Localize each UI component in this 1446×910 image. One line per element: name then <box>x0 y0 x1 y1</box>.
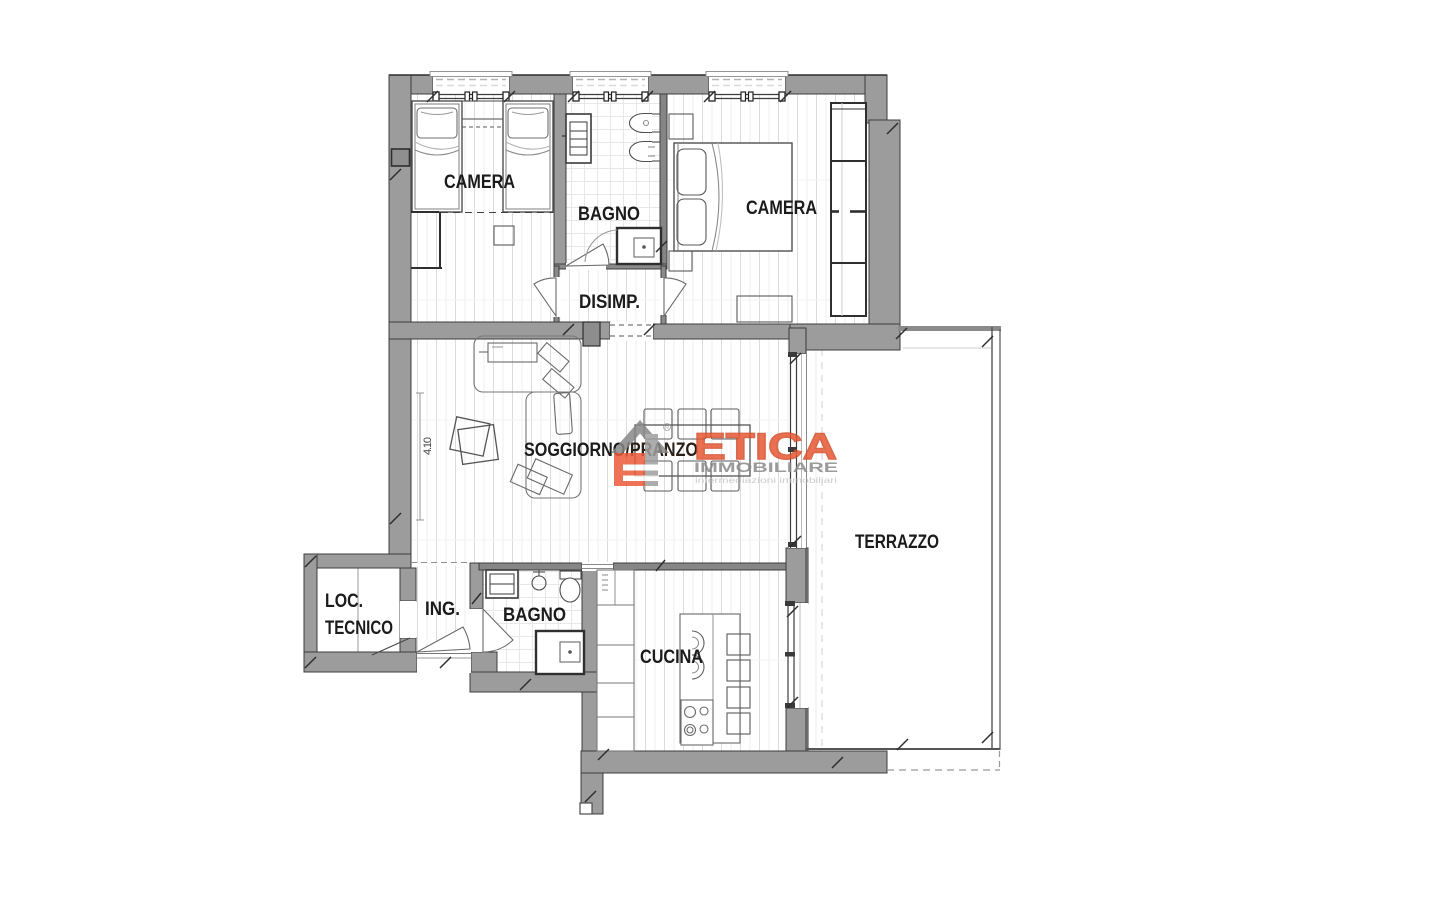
svg-text:CAMERA: CAMERA <box>444 172 515 193</box>
svg-text:CUCINA: CUCINA <box>640 647 703 668</box>
svg-text:CAMERA: CAMERA <box>746 198 817 219</box>
svg-text:LOC.: LOC. <box>325 591 363 612</box>
svg-text:R: R <box>665 426 669 432</box>
svg-text:4.10: 4.10 <box>422 437 434 455</box>
svg-text:TECNICO: TECNICO <box>325 618 393 639</box>
svg-text:ING.: ING. <box>425 599 460 620</box>
svg-text:SOGGIORNO/PRANZO: SOGGIORNO/PRANZO <box>524 440 698 461</box>
svg-text:intermediazioni immobiliari: intermediazioni immobiliari <box>695 476 837 485</box>
svg-text:BAGNO: BAGNO <box>503 605 566 626</box>
svg-text:IMMOBILIARE: IMMOBILIARE <box>694 460 838 475</box>
svg-text:BAGNO: BAGNO <box>578 204 640 225</box>
svg-text:TERRAZZO: TERRAZZO <box>855 532 939 553</box>
svg-text:DISIMP.: DISIMP. <box>579 292 640 313</box>
